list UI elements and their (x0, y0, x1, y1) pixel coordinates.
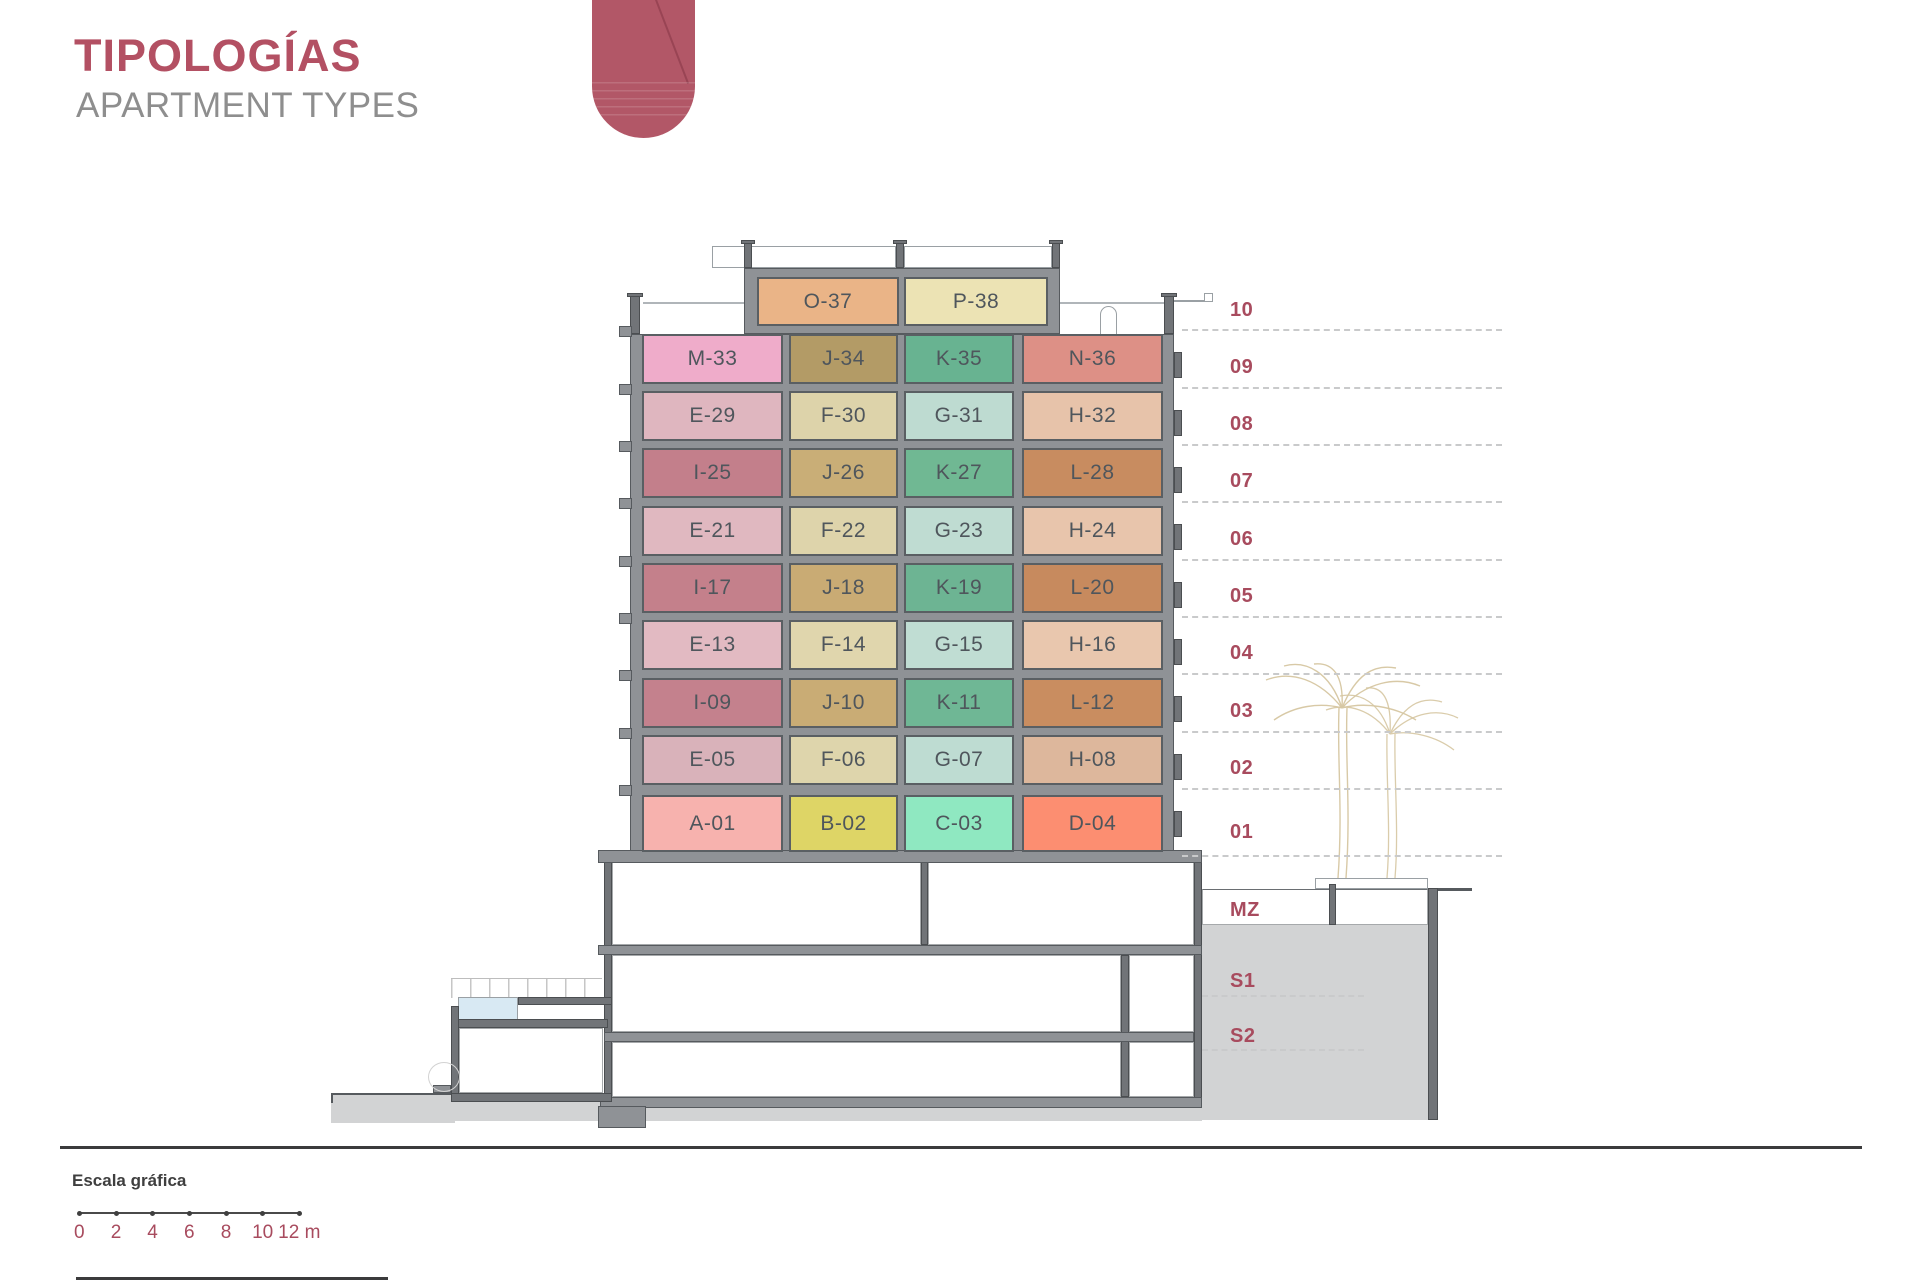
floor-label-05: 05 (1230, 584, 1290, 608)
floor-label-09: 09 (1230, 355, 1290, 379)
mezzanine-room-left (612, 862, 921, 945)
scale-tick-dot (77, 1211, 82, 1216)
balcony-fin (1174, 639, 1182, 665)
mezzanine-floor-slab (598, 945, 1202, 955)
unit-cell-F-22: F-22 (789, 506, 898, 556)
basement2-floor-slab (600, 1097, 1202, 1108)
scale-tick-dot (297, 1211, 302, 1216)
basement1-room-main (612, 955, 1121, 1032)
scale-tick-dot (187, 1211, 192, 1216)
roof-parapet-post (896, 243, 904, 268)
annex-roof-railing (451, 978, 602, 998)
basement1-grade-dash (1202, 995, 1364, 997)
unit-cell-P-38: P-38 (904, 277, 1048, 326)
annex-deck-slab (518, 997, 612, 1005)
roof-pergola-left (712, 246, 896, 268)
basement2-room-main (612, 1042, 1121, 1097)
palm-tree-icon (1326, 688, 1458, 878)
floor-gridline-07 (1182, 501, 1502, 503)
ribbon-bookmark-shape (592, 0, 695, 138)
floor-gridline-09 (1182, 387, 1502, 389)
unit-cell-F-14: F-14 (789, 620, 898, 670)
unit-cell-G-07: G-07 (904, 735, 1014, 785)
balcony-slab-tab (619, 498, 632, 509)
scale-tick-dot (114, 1211, 119, 1216)
footer-separator-line (60, 1146, 1862, 1149)
terrace-parapet-right (1164, 296, 1174, 334)
unit-cell-M-33: M-33 (642, 334, 783, 384)
balcony-fin (1174, 352, 1182, 378)
roof-parapet-post (1052, 243, 1060, 268)
balcony-fin (1174, 467, 1182, 493)
scale-tick-label: 12 m (274, 1222, 324, 1244)
ground-fill-right (1202, 925, 1428, 1120)
unit-cell-F-30: F-30 (789, 391, 898, 441)
scale-tick-dot (150, 1211, 155, 1216)
unit-cell-J-10: J-10 (789, 678, 898, 728)
unit-cell-D-04: D-04 (1022, 795, 1163, 852)
balcony-slab-tab (619, 556, 632, 567)
unit-cell-L-28: L-28 (1022, 448, 1163, 498)
unit-cell-A-01: A-01 (642, 795, 783, 852)
unit-cell-E-05: E-05 (642, 735, 783, 785)
unit-cell-H-24: H-24 (1022, 506, 1163, 556)
basement2-room-right (1129, 1042, 1194, 1097)
retaining-wall-right (1428, 888, 1438, 1120)
unit-cell-H-08: H-08 (1022, 735, 1163, 785)
floor-label-10: 10 (1230, 298, 1290, 322)
balcony-fin (1174, 524, 1182, 550)
unit-cell-B-02: B-02 (789, 795, 898, 852)
balcony-slab-tab (619, 613, 632, 624)
pool-water (458, 997, 518, 1020)
balcony-slab-tab (619, 728, 632, 739)
floor-gridline-06 (1182, 559, 1502, 561)
mezzanine-divider-wall (921, 862, 928, 945)
level-label-MZ: MZ (1230, 898, 1290, 922)
floor-gridline-08 (1182, 444, 1502, 446)
basement2-grade-dash (1202, 1049, 1364, 1051)
balcony-slab-tab (619, 441, 632, 452)
unit-cell-F-06: F-06 (789, 735, 898, 785)
shrub-drawing (428, 1062, 460, 1092)
terrace-railing-left (643, 302, 744, 304)
floor-label-06: 06 (1230, 527, 1290, 551)
ground-edge-tick (331, 1093, 333, 1103)
roof-parapet-post (744, 243, 752, 268)
unit-cell-G-31: G-31 (904, 391, 1014, 441)
annex-bottom-slab (451, 1093, 612, 1102)
page-title: TIPOLOGÍAS (74, 30, 362, 82)
unit-cell-G-15: G-15 (904, 620, 1014, 670)
unit-cell-N-36: N-36 (1022, 334, 1163, 384)
balcony-fin (1174, 754, 1182, 780)
floor-gridline-03 (1182, 731, 1502, 733)
balcony-slab-tab (619, 785, 632, 796)
scale-tick-dot (260, 1211, 265, 1216)
unit-cell-H-32: H-32 (1022, 391, 1163, 441)
balcony-fin (1174, 811, 1182, 837)
unit-cell-E-29: E-29 (642, 391, 783, 441)
roof-terrace-post (1204, 293, 1213, 302)
unit-cell-L-12: L-12 (1022, 678, 1163, 728)
unit-cell-J-26: J-26 (789, 448, 898, 498)
unit-cell-K-11: K-11 (904, 678, 1014, 728)
ground-fill-left (331, 1093, 455, 1123)
unit-cell-C-03: C-03 (904, 795, 1014, 852)
floor-label-03: 03 (1230, 699, 1290, 723)
unit-cell-I-17: I-17 (642, 563, 783, 613)
floor-gridline-01 (1182, 855, 1502, 857)
ribbon-fold-line (655, 0, 689, 84)
floor-gridline-10 (1182, 329, 1502, 331)
unit-cell-O-37: O-37 (757, 277, 899, 326)
floor-gridline-04 (1182, 673, 1502, 675)
unit-cell-I-25: I-25 (642, 448, 783, 498)
grade-line-right (1438, 888, 1472, 891)
floor-gridline-05 (1182, 616, 1502, 618)
unit-cell-E-21: E-21 (642, 506, 783, 556)
floor-gridline-02 (1182, 788, 1502, 790)
balcony-slab-tab (619, 326, 632, 337)
level-label-S1: S1 (1230, 969, 1290, 993)
unit-cell-I-09: I-09 (642, 678, 783, 728)
scale-heading: Escala gráfica (72, 1171, 186, 1191)
basement-right-wall (1194, 862, 1202, 1108)
annex-room (459, 1028, 603, 1093)
roof-pergola-right (904, 246, 1052, 268)
unit-cell-K-19: K-19 (904, 563, 1014, 613)
unit-cell-J-18: J-18 (789, 563, 898, 613)
apartment-types-diagram-page: TIPOLOGÍAS APARTMENT TYPES (0, 0, 1920, 1280)
terrace-railing-right (1060, 302, 1164, 304)
scale-tick-dot (224, 1211, 229, 1216)
mezzanine-room-right (928, 862, 1194, 945)
ribbon-texture (592, 82, 695, 118)
balcony-fin (1174, 410, 1182, 436)
basement1-floor-slab (604, 1032, 1194, 1042)
unit-cell-G-23: G-23 (904, 506, 1014, 556)
balcony-fin (1174, 696, 1182, 722)
floor-label-02: 02 (1230, 756, 1290, 780)
floor-label-07: 07 (1230, 469, 1290, 493)
level-label-S2: S2 (1230, 1024, 1290, 1048)
basement-mid-wall (1121, 955, 1129, 1097)
pool-basin-slab (455, 1019, 608, 1028)
balcony-slab-tab (619, 384, 632, 395)
foundation-step (598, 1106, 646, 1128)
unit-cell-L-20: L-20 (1022, 563, 1163, 613)
floor-label-08: 08 (1230, 412, 1290, 436)
page-subtitle: APARTMENT TYPES (76, 86, 419, 126)
floor-label-01: 01 (1230, 820, 1290, 844)
unit-cell-H-16: H-16 (1022, 620, 1163, 670)
roof-terrace-door-arch (1100, 306, 1117, 334)
terrace-wall (1329, 884, 1336, 925)
floor-label-04: 04 (1230, 641, 1290, 665)
balcony-fin (1174, 582, 1182, 608)
basement1-room-right (1129, 955, 1194, 1032)
unit-cell-J-34: J-34 (789, 334, 898, 384)
balcony-slab-tab (619, 670, 632, 681)
unit-cell-K-27: K-27 (904, 448, 1014, 498)
basement-left-wall (604, 862, 612, 1097)
unit-cell-E-13: E-13 (642, 620, 783, 670)
unit-cell-K-35: K-35 (904, 334, 1014, 384)
